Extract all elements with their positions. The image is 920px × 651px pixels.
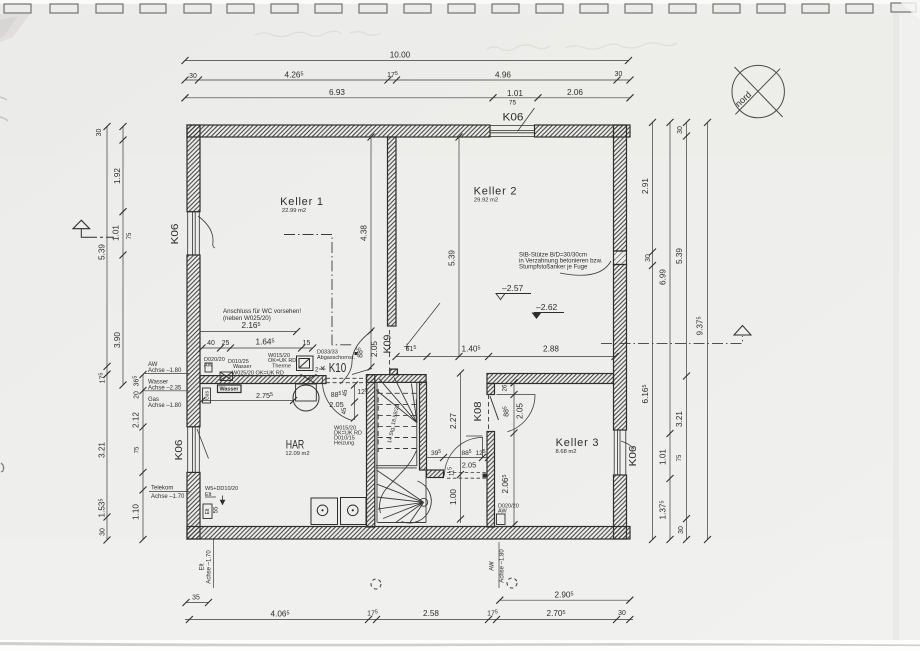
svg-text:40: 40: [207, 340, 215, 347]
svg-text:–2.62: –2.62: [536, 302, 558, 312]
svg-text:30: 30: [618, 610, 626, 617]
svg-text:2.88: 2.88: [543, 345, 559, 354]
svg-text:30: 30: [645, 254, 652, 262]
svg-text:5.39: 5.39: [675, 248, 684, 264]
svg-text:Keller 3: Keller 3: [556, 437, 600, 449]
svg-text:Achse –1.80: Achse –1.80: [148, 368, 182, 374]
svg-text:Wasser: Wasser: [220, 387, 240, 393]
svg-text:30: 30: [189, 73, 197, 80]
svg-text:2.05: 2.05: [516, 403, 525, 419]
svg-text:45: 45: [342, 407, 348, 414]
svg-text:30: 30: [615, 71, 623, 78]
svg-text:55: 55: [214, 506, 220, 513]
svg-text:Achse –1.70: Achse –1.70: [151, 494, 185, 500]
svg-text:Keller 1: Keller 1: [280, 196, 324, 208]
svg-text:Elt: Elt: [205, 508, 211, 514]
svg-text:12.09 m2: 12.09 m2: [285, 451, 309, 457]
svg-text:K06: K06: [170, 223, 181, 245]
svg-text:1.01: 1.01: [112, 225, 121, 241]
svg-text:75: 75: [677, 454, 683, 461]
svg-text:1.01: 1.01: [507, 89, 523, 98]
svg-text:W025/20 OK=UK RD: W025/20 OK=UK RD: [232, 371, 284, 377]
svg-text:2.91: 2.91: [641, 178, 650, 194]
svg-text:K06: K06: [174, 439, 185, 461]
svg-text:1.92: 1.92: [113, 168, 122, 184]
svg-text:29.92 m2: 29.92 m2: [474, 198, 498, 204]
svg-text:Keller 2: Keller 2: [474, 186, 518, 198]
svg-text:5.39: 5.39: [448, 250, 457, 266]
svg-text:30: 30: [677, 126, 684, 134]
svg-text:K10: K10: [329, 361, 347, 375]
svg-text:Gas: Gas: [205, 390, 211, 400]
svg-text:–2.57: –2.57: [502, 283, 524, 293]
svg-text:5.39: 5.39: [98, 244, 107, 260]
svg-text:3.21: 3.21: [675, 411, 684, 427]
svg-text:4.38: 4.38: [360, 225, 369, 241]
svg-text:45: 45: [343, 389, 349, 396]
svg-text:Achse –1.70: Achse –1.70: [207, 550, 213, 584]
svg-text:1.01: 1.01: [659, 449, 668, 465]
svg-text:(neben W025/20): (neben W025/20): [223, 315, 271, 322]
svg-text:75: 75: [127, 232, 133, 239]
svg-text:4.96: 4.96: [495, 71, 511, 80]
svg-text:6.99: 6.99: [659, 269, 668, 285]
svg-text:25: 25: [222, 340, 230, 347]
svg-text:30: 30: [678, 526, 685, 534]
svg-text:30: 30: [100, 528, 107, 536]
svg-text:Anschluss für WC vorsehen!: Anschluss für WC vorsehen!: [223, 308, 301, 315]
svg-text:20: 20: [134, 391, 141, 399]
svg-text:3.90: 3.90: [113, 332, 122, 348]
svg-text:2.05: 2.05: [329, 400, 343, 409]
svg-text:K09: K09: [383, 334, 394, 353]
svg-text:Abgasschornst.: Abgasschornst.: [317, 355, 355, 361]
svg-text:Telekom: Telekom: [151, 486, 173, 492]
svg-text:30: 30: [96, 129, 103, 137]
svg-text:K08: K08: [473, 401, 484, 421]
svg-text:2.12: 2.12: [132, 412, 141, 428]
svg-text:2.05: 2.05: [370, 341, 379, 357]
svg-text:2.58: 2.58: [423, 609, 439, 618]
svg-text:Stumpfstoßanker je Fuge: Stumpfstoßanker je Fuge: [519, 264, 588, 271]
svg-text:22.99 m2: 22.99 m2: [282, 208, 306, 214]
svg-text:AW: AW: [490, 561, 496, 571]
svg-text:8.68 m2: 8.68 m2: [556, 449, 577, 455]
svg-text:1.00: 1.00: [449, 489, 458, 505]
svg-text:6.93: 6.93: [329, 88, 345, 97]
svg-text:2.06: 2.06: [567, 88, 583, 97]
svg-text:10.00: 10.00: [390, 51, 411, 60]
svg-text:35: 35: [192, 595, 200, 602]
svg-text:HAR: HAR: [286, 438, 305, 452]
svg-text:26: 26: [503, 384, 509, 391]
svg-text:2.27: 2.27: [449, 413, 458, 429]
svg-text:Wasser: Wasser: [233, 364, 252, 370]
svg-text:K06: K06: [503, 112, 524, 124]
svg-text:Therme: Therme: [272, 364, 291, 370]
svg-text:Achse –1.80: Achse –1.80: [148, 403, 182, 409]
svg-text:Heizung: Heizung: [334, 441, 354, 447]
svg-text:Achse –1.80: Achse –1.80: [500, 549, 506, 583]
svg-text:75: 75: [509, 100, 517, 107]
svg-text:1.10: 1.10: [132, 504, 141, 520]
svg-text:3.21: 3.21: [98, 442, 107, 458]
svg-text:75: 75: [135, 446, 141, 453]
svg-text:Elt: Elt: [200, 563, 206, 570]
svg-text:15: 15: [303, 340, 311, 347]
svg-text:2.05: 2.05: [462, 461, 476, 470]
